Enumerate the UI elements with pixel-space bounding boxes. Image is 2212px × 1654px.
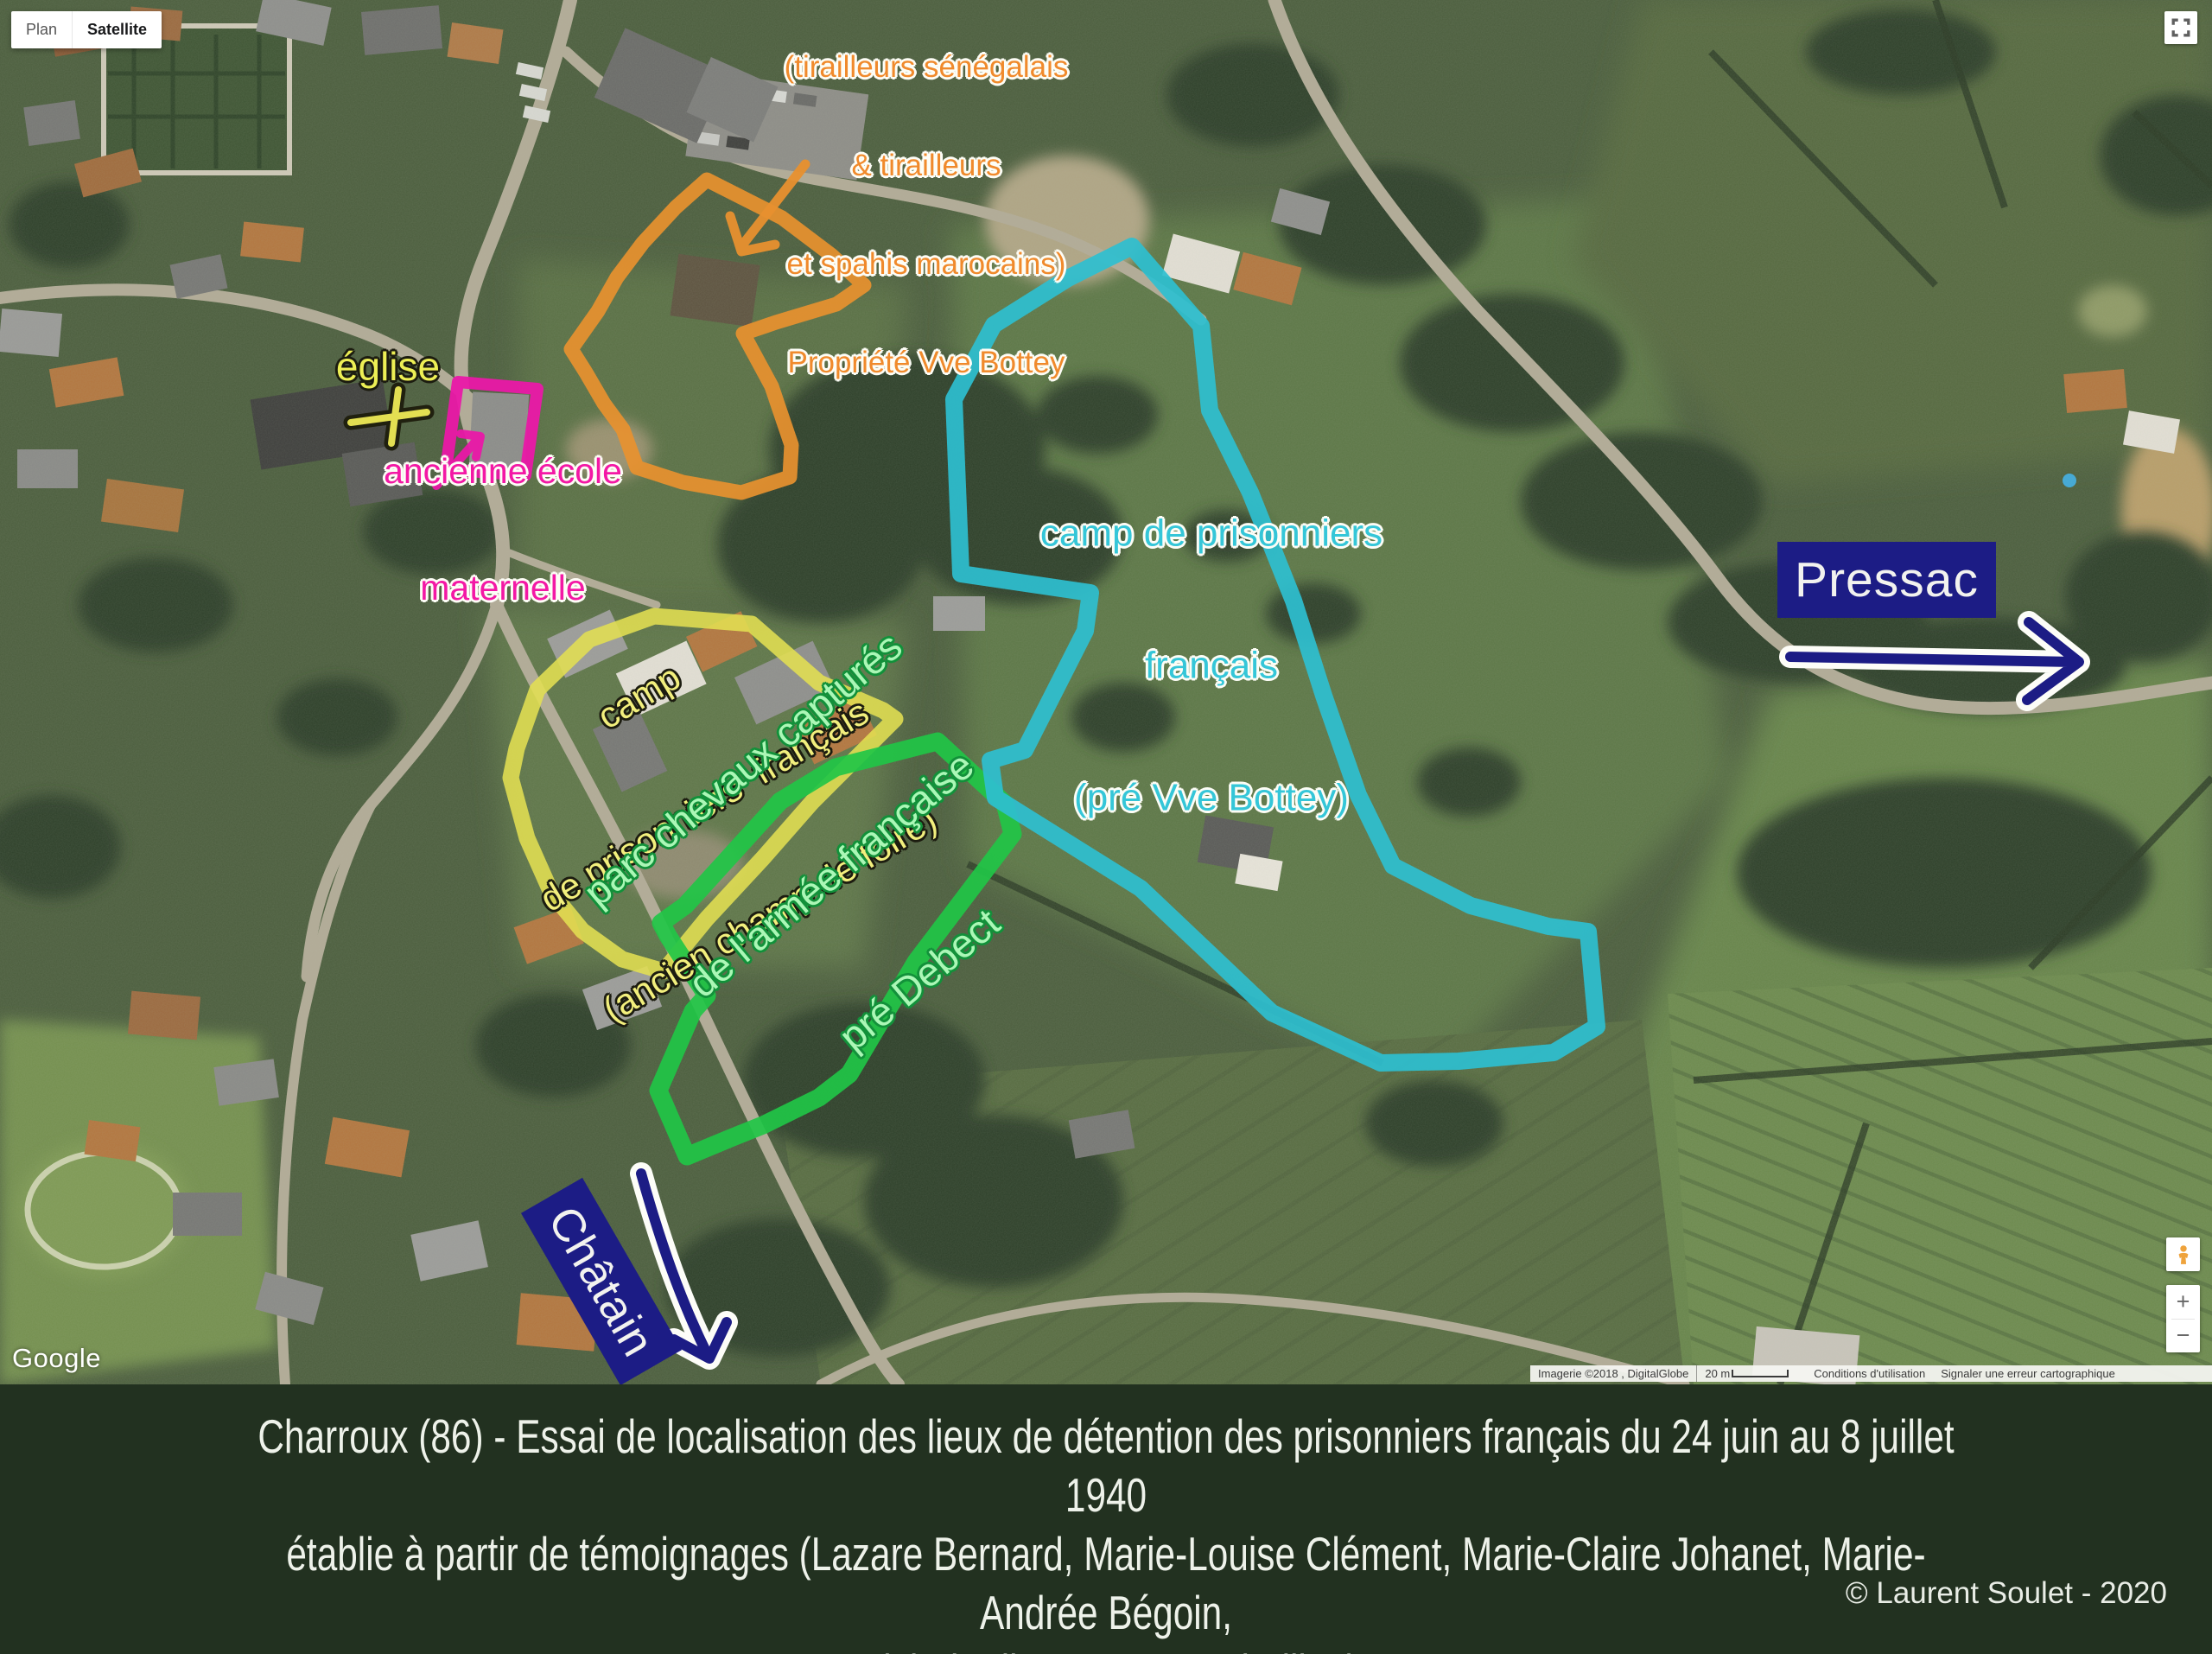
attribution-bar: Imagerie ©2018 , DigitalGlobe 20 m Condi…: [1530, 1365, 2212, 1382]
map-canvas[interactable]: camp prisonniers français (tirailleurs s…: [0, 0, 2212, 1384]
google-logo[interactable]: Google: [12, 1343, 101, 1374]
map-type-plan-button[interactable]: Plan: [11, 11, 72, 48]
zoom-control: + −: [2166, 1285, 2200, 1352]
imagery-credit: Imagerie ©2018 , DigitalGlobe: [1530, 1367, 1696, 1380]
caption-line1: Charroux (86) - Essai de localisation de…: [254, 1407, 1957, 1524]
school-label-line2: maternelle: [384, 569, 622, 608]
zoom-out-button[interactable]: −: [2166, 1320, 2200, 1353]
zoom-in-button[interactable]: +: [2166, 1285, 2200, 1319]
pressac-direction-box: Pressac: [1777, 542, 1996, 618]
orange-camp-label-line5: Propriété Vve Bottey: [754, 347, 1099, 379]
report-error-link[interactable]: Signaler une erreur cartographique: [1933, 1367, 2123, 1380]
cyan-camp-label-line1: camp de prisonniers: [1040, 512, 1382, 556]
scale-bar: [1732, 1370, 1789, 1377]
orange-camp-label-line4: et spahis marocains): [754, 248, 1099, 281]
orange-camp-label-line3: & tirailleurs: [754, 149, 1099, 182]
cyan-camp-label-line3: (pré Vve Bottey): [1040, 776, 1382, 820]
pressac-direction-label: Pressac: [1795, 551, 1979, 608]
pegman-icon: [2174, 1244, 2193, 1265]
orange-camp-label-line2: (tirailleurs sénégalais: [754, 51, 1099, 84]
map-type-satellite-button[interactable]: Satellite: [72, 11, 162, 48]
fullscreen-button[interactable]: [2164, 11, 2197, 44]
cyan-camp-label: camp de prisonniers français (pré Vve Bo…: [1040, 423, 1382, 908]
pressac-arrow: [1790, 622, 2079, 700]
caption-line2: établie à partir de témoignages (Lazare …: [254, 1524, 1957, 1642]
caption-panel: Charroux (86) - Essai de localisation de…: [0, 1384, 2212, 1654]
map-type-toggle: Plan Satellite: [11, 11, 162, 48]
scale-label: 20 m: [1697, 1367, 1730, 1380]
orange-camp-label: camp prisonniers français (tirailleurs s…: [754, 0, 1099, 445]
fullscreen-icon: [2171, 18, 2190, 37]
pegman-button[interactable]: [2166, 1237, 2200, 1271]
cyan-camp-label-line2: français: [1040, 644, 1382, 688]
screenshot: camp prisonniers français (tirailleurs s…: [0, 0, 2212, 1654]
school-label-line1: ancienne école: [384, 452, 622, 491]
copyright-credit: © Laurent Soulet - 2020: [1846, 1576, 2167, 1611]
terms-link[interactable]: Conditions d'utilisation: [1806, 1367, 1933, 1380]
caption-line3: Michel Tribert, Raymond Fillon): [254, 1642, 1957, 1654]
